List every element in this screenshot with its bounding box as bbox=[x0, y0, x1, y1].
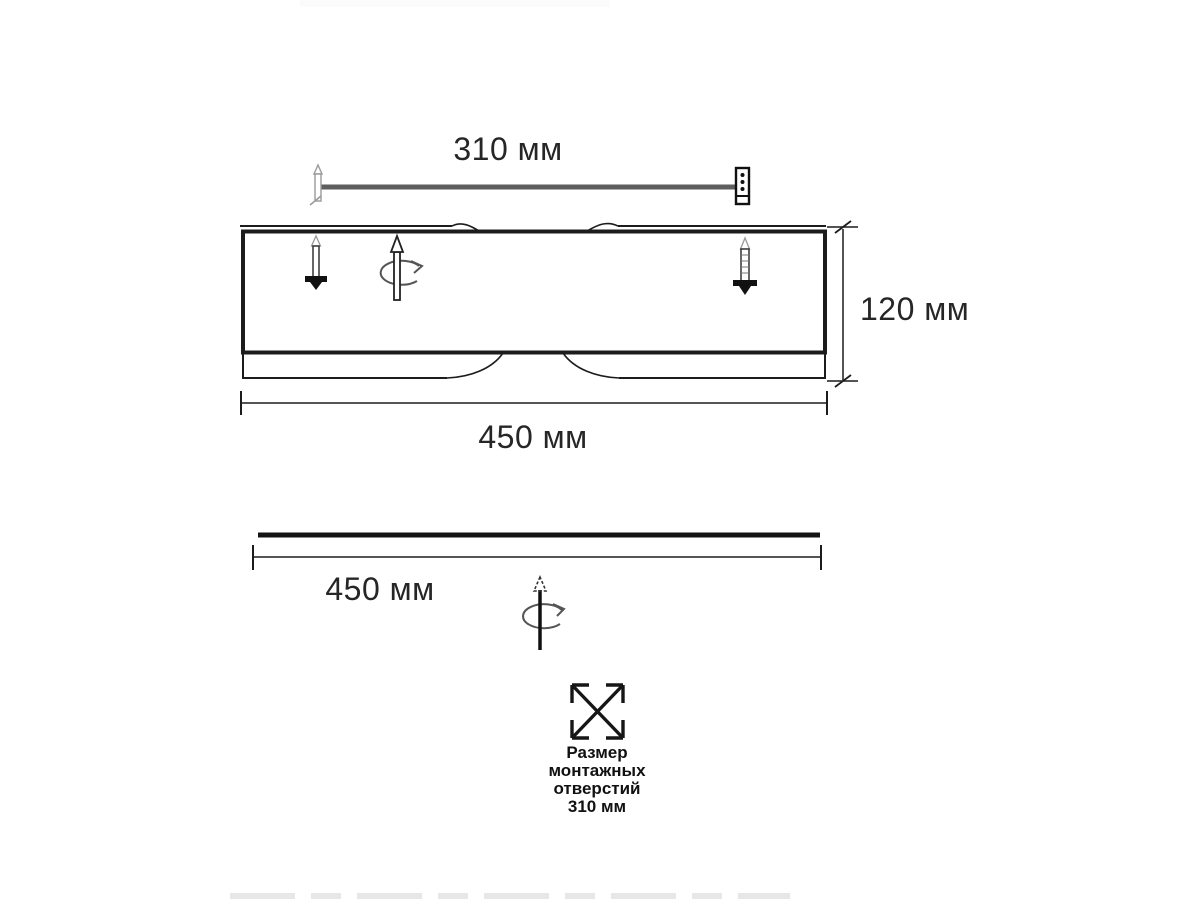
dimension-label-120mm: 120 мм bbox=[860, 291, 969, 328]
lamp-body-front-view bbox=[240, 224, 826, 378]
dimension-label-450mm-side: 450 мм bbox=[270, 571, 490, 608]
top-crop-remnant bbox=[300, 0, 610, 7]
screw-icon bbox=[310, 165, 322, 205]
dimension-label-450mm-front: 450 мм bbox=[423, 419, 643, 456]
rotate-arrow-icon bbox=[523, 577, 564, 650]
mounting-note-line: Размер bbox=[487, 744, 707, 762]
height-dimension bbox=[827, 221, 858, 387]
crossed-square-icon bbox=[572, 685, 623, 738]
wall-anchor-icon bbox=[736, 168, 749, 204]
mounting-note: Размер монтажных отверстий 310 мм bbox=[487, 744, 707, 816]
front-width-dimension bbox=[241, 391, 827, 415]
mounting-note-line: 310 мм bbox=[487, 798, 707, 816]
threaded-screw-icon bbox=[733, 238, 757, 295]
side-width-dimension bbox=[253, 545, 821, 570]
mounting-note-line: монтажных bbox=[487, 762, 707, 780]
rotate-arrow-icon bbox=[381, 236, 422, 300]
dimensional-drawing: 310 мм 120 мм 450 мм 450 мм Размер монта… bbox=[0, 0, 1200, 900]
mounting-note-line: отверстий bbox=[487, 780, 707, 798]
screw-down-icon bbox=[305, 236, 327, 290]
dimension-label-310mm: 310 мм bbox=[398, 131, 618, 168]
